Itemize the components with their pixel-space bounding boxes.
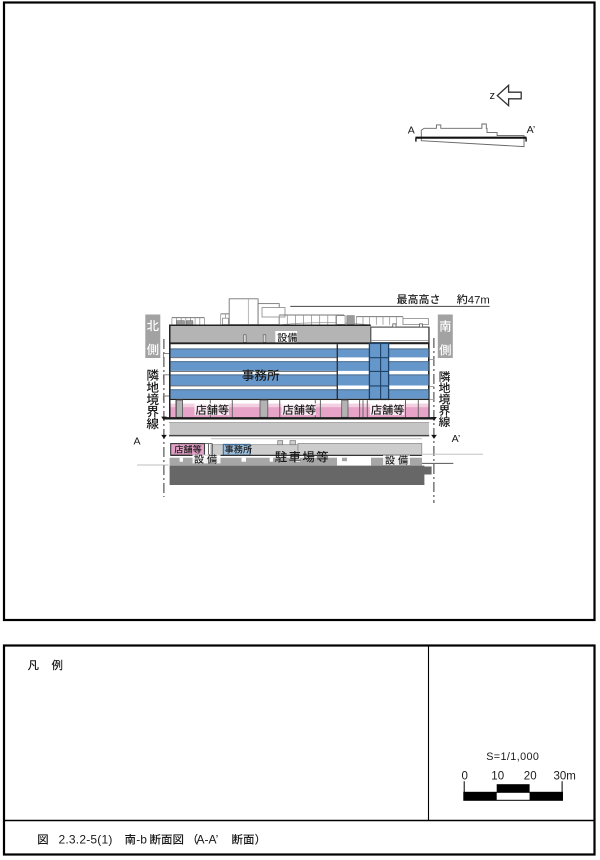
svg-text:A: A [408,125,415,137]
svg-text:A’: A’ [527,124,536,136]
svg-text:z: z [490,90,496,102]
svg-text:30m: 30m [554,770,576,782]
svg-text:47m: 47m [468,294,490,306]
svg-text:0: 0 [462,770,468,782]
svg-text:20: 20 [524,770,537,782]
svg-text:A: A [134,436,141,448]
svg-text:A’: A’ [452,433,461,445]
svg-text:A-A’: A-A’ [197,832,219,846]
svg-text:2.3.2-5(1): 2.3.2-5(1) [59,832,113,846]
svg-text:10: 10 [491,770,504,782]
svg-text:S=1/1,000: S=1/1,000 [486,751,539,763]
svg-text:-b: -b [136,832,147,846]
